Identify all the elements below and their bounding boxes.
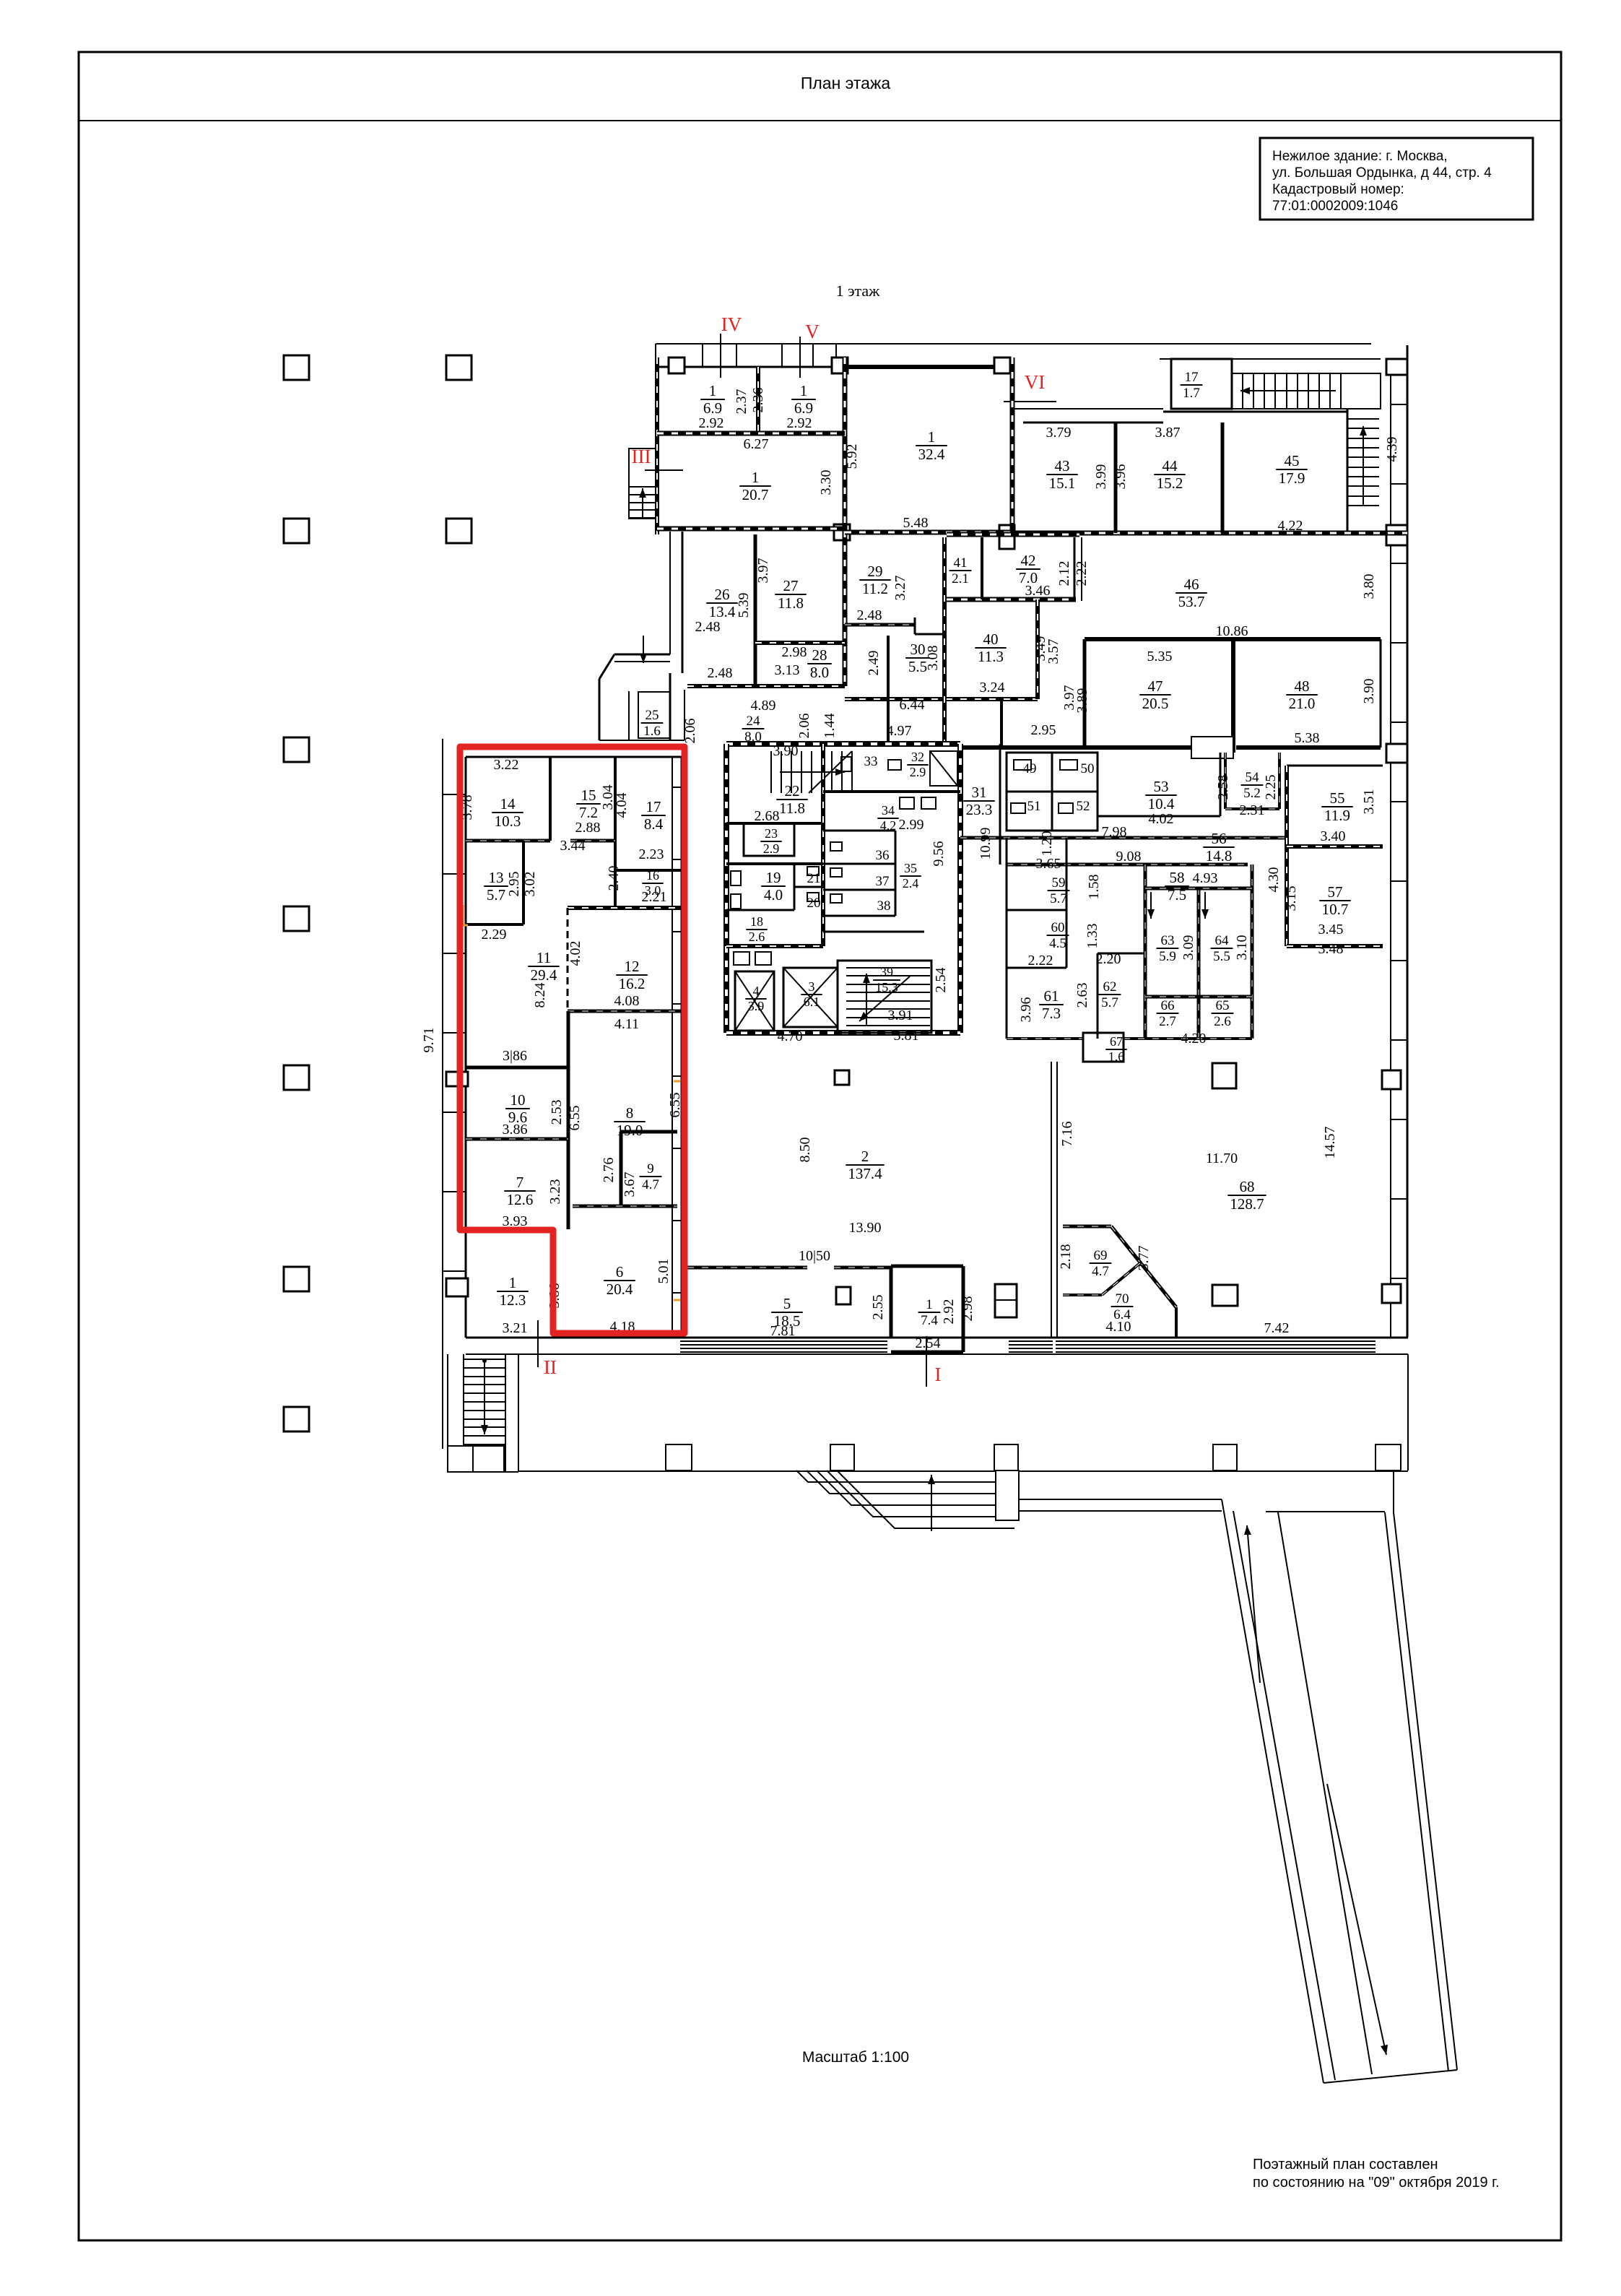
svg-text:3.30: 3.30 [818,470,834,495]
svg-text:5.7: 5.7 [487,886,505,904]
svg-text:47: 47 [1148,677,1163,695]
svg-text:4.39: 4.39 [1384,437,1400,462]
svg-text:2.29: 2.29 [482,927,507,943]
svg-text:2.9: 2.9 [763,841,780,856]
svg-text:23.3: 23.3 [966,801,993,818]
svg-text:3.99: 3.99 [1093,464,1109,490]
svg-text:38: 38 [877,898,891,914]
svg-text:3|86: 3|86 [503,1048,527,1064]
svg-text:12.6: 12.6 [507,1191,534,1208]
svg-text:2.31: 2.31 [1240,802,1265,818]
svg-text:15.1: 15.1 [1049,475,1076,492]
svg-text:2.40: 2.40 [606,866,622,891]
svg-text:137.4: 137.4 [848,1165,882,1182]
svg-text:1 этаж: 1 этаж [836,282,881,300]
svg-text:15: 15 [581,787,596,804]
svg-text:1: 1 [709,382,717,399]
svg-text:2.76: 2.76 [601,1158,617,1183]
svg-text:2.95: 2.95 [1031,722,1056,738]
svg-text:I: I [935,1364,942,1385]
svg-text:2.6: 2.6 [1214,1014,1231,1029]
svg-text:4.70: 4.70 [778,1028,803,1044]
svg-text:63: 63 [1161,933,1175,948]
svg-text:41: 41 [954,555,968,571]
svg-text:2.48: 2.48 [708,665,733,681]
svg-text:1: 1 [752,469,760,486]
svg-text:2.18: 2.18 [1058,1244,1074,1270]
svg-text:60: 60 [1051,920,1065,935]
svg-text:3.90: 3.90 [773,743,799,759]
svg-text:2.92: 2.92 [941,1299,957,1325]
svg-text:7.42: 7.42 [1264,1320,1290,1336]
svg-text:IV: IV [721,313,742,335]
svg-text:2.25: 2.25 [1263,775,1279,800]
svg-text:65: 65 [1216,998,1230,1013]
svg-text:2.21: 2.21 [642,889,667,905]
svg-text:2.49: 2.49 [866,651,882,676]
svg-text:55: 55 [1330,789,1345,807]
svg-text:52: 52 [1077,799,1090,814]
svg-text:3.65: 3.65 [1036,856,1061,872]
svg-text:4.97: 4.97 [887,723,912,739]
svg-text:3.27: 3.27 [892,576,908,601]
svg-text:7.16: 7.16 [1059,1122,1075,1147]
svg-text:17.9: 17.9 [1279,469,1305,487]
svg-text:2.23: 2.23 [639,846,664,862]
svg-text:32.4: 32.4 [918,446,945,463]
svg-text:31: 31 [972,784,987,801]
svg-text:43: 43 [1055,457,1070,475]
svg-text:5.7: 5.7 [1050,891,1067,906]
svg-text:3.15: 3.15 [1283,886,1299,911]
svg-text:4.7: 4.7 [1092,1264,1109,1279]
svg-text:1.20: 1.20 [1039,831,1055,857]
svg-text:3.23: 3.23 [547,1179,563,1205]
svg-text:5.39: 5.39 [736,593,752,618]
svg-text:1.58: 1.58 [1086,875,1102,900]
svg-text:3.24: 3.24 [980,680,1005,696]
svg-text:4.0: 4.0 [764,886,783,904]
svg-text:4.10: 4.10 [1106,1319,1131,1335]
svg-text:3.9: 3.9 [748,999,765,1013]
svg-text:58: 58 [1170,869,1185,886]
svg-text:54: 54 [1246,770,1260,785]
svg-text:1.33: 1.33 [1085,924,1100,949]
svg-text:II: II [544,1356,557,1378]
svg-text:2.54: 2.54 [933,968,949,993]
svg-text:2.53: 2.53 [549,1100,565,1125]
svg-text:2.55: 2.55 [870,1295,886,1320]
svg-text:3.81: 3.81 [894,1028,919,1044]
svg-text:3.13: 3.13 [775,662,800,678]
svg-text:51: 51 [1027,799,1041,814]
svg-text:17: 17 [1185,370,1199,385]
svg-text:III: III [632,446,651,467]
svg-text:69: 69 [1094,1248,1108,1263]
svg-text:36: 36 [876,848,890,863]
svg-text:3.48: 3.48 [1318,941,1344,957]
svg-text:3.44: 3.44 [560,838,586,854]
svg-text:49: 49 [1023,761,1037,776]
svg-text:3.46: 3.46 [1025,583,1051,599]
svg-text:9.08: 9.08 [1116,849,1142,865]
svg-text:Кадастровый номер:: Кадастровый номер: [1272,182,1404,197]
svg-text:2: 2 [861,1148,869,1165]
svg-text:46: 46 [1184,576,1199,593]
svg-text:Масштаб 1:100: Масштаб 1:100 [802,2049,909,2066]
svg-text:1: 1 [928,428,936,446]
svg-text:3.40: 3.40 [1321,828,1346,844]
svg-text:53.7: 53.7 [1178,593,1205,610]
svg-text:61: 61 [1044,987,1059,1005]
svg-text:3.22: 3.22 [494,757,519,773]
svg-text:2.92: 2.92 [699,415,724,431]
svg-text:6.9: 6.9 [703,399,722,417]
svg-text:14.8: 14.8 [1206,847,1233,865]
svg-text:3: 3 [809,979,815,994]
svg-text:11.8: 11.8 [779,800,805,817]
svg-text:62: 62 [1103,979,1117,995]
svg-text:22: 22 [785,782,800,800]
svg-text:3.77: 3.77 [1136,1246,1152,1271]
svg-text:3.09: 3.09 [1181,935,1196,961]
svg-text:4.93: 4.93 [1193,870,1218,886]
svg-text:2.54: 2.54 [916,1335,941,1351]
svg-text:1: 1 [509,1274,517,1291]
svg-text:4.20: 4.20 [1181,1031,1207,1047]
svg-text:8.24: 8.24 [532,983,548,1008]
svg-text:27: 27 [783,577,799,594]
svg-text:3.51: 3.51 [1361,789,1377,815]
svg-text:2.98: 2.98 [782,644,807,660]
svg-text:44: 44 [1162,457,1178,475]
svg-text:1: 1 [800,382,808,399]
svg-text:1: 1 [926,1297,933,1312]
svg-text:4.2: 4.2 [880,818,897,833]
svg-text:24: 24 [747,714,761,729]
svg-text:8: 8 [626,1104,634,1122]
svg-text:15.3: 15.3 [875,980,898,995]
svg-text:1.6: 1.6 [643,724,661,739]
svg-text:8.4: 8.4 [644,815,664,833]
svg-text:11.9: 11.9 [1324,807,1350,824]
svg-text:59: 59 [1052,875,1066,891]
svg-text:40: 40 [983,631,999,648]
svg-text:57: 57 [1328,883,1343,901]
svg-text:ул. Большая Ордынка, д 44, стр: ул. Большая Ордынка, д 44, стр. 4 [1272,165,1492,181]
svg-text:4: 4 [753,984,760,998]
svg-text:4.08: 4.08 [614,993,640,1009]
svg-text:70: 70 [1116,1291,1129,1307]
svg-text:по состоянию на "09" октября 2: по состоянию на "09" октября 2019 г. [1253,2175,1500,2191]
svg-text:2.99: 2.99 [899,817,924,833]
svg-text:3.67: 3.67 [622,1172,638,1197]
svg-text:2.9: 2.9 [910,765,926,779]
svg-text:9: 9 [647,1161,654,1177]
svg-text:2.88: 2.88 [575,820,601,836]
svg-text:11.3: 11.3 [978,648,1004,665]
svg-text:2.58: 2.58 [1215,775,1231,800]
svg-text:3.97: 3.97 [755,558,771,584]
svg-text:7: 7 [516,1174,524,1191]
svg-text:11.8: 11.8 [778,594,804,612]
svg-text:2.1: 2.1 [952,571,969,586]
svg-text:128.7: 128.7 [1230,1195,1264,1213]
svg-text:4.89: 4.89 [751,698,776,714]
svg-text:6: 6 [616,1263,624,1281]
svg-text:12: 12 [625,958,640,975]
svg-text:56: 56 [1212,830,1227,847]
svg-text:2.06: 2.06 [682,719,698,744]
svg-text:2.68: 2.68 [755,808,780,824]
svg-text:3.87: 3.87 [1155,425,1181,441]
svg-text:5.9: 5.9 [1159,949,1176,964]
svg-text:7.2: 7.2 [579,804,598,821]
svg-text:2.98: 2.98 [960,1296,975,1322]
svg-text:21.0: 21.0 [1289,695,1316,712]
svg-text:5.01: 5.01 [656,1259,672,1284]
svg-text:10.7: 10.7 [1322,901,1349,918]
svg-text:3.86: 3.86 [503,1122,528,1138]
svg-text:3.89: 3.89 [1074,688,1090,714]
svg-text:2.37: 2.37 [734,389,749,415]
svg-text:V: V [805,321,820,342]
svg-text:6.1: 6.1 [804,995,820,1009]
svg-text:13.90: 13.90 [849,1220,882,1236]
svg-text:12.3: 12.3 [500,1291,526,1309]
svg-text:14: 14 [500,795,516,813]
svg-text:VI: VI [1025,371,1046,393]
svg-text:5.5: 5.5 [1213,949,1230,964]
svg-text:20.5: 20.5 [1142,695,1169,712]
svg-text:7.81: 7.81 [770,1323,796,1339]
svg-text:2.48: 2.48 [695,619,721,635]
svg-text:42: 42 [1021,552,1036,569]
svg-text:3.90: 3.90 [1361,679,1377,704]
svg-text:30: 30 [911,641,926,658]
svg-text:10|50: 10|50 [799,1248,830,1264]
svg-text:6.9: 6.9 [794,399,813,417]
svg-text:10.86: 10.86 [1216,623,1248,639]
svg-text:34: 34 [882,803,895,818]
svg-text:4.02: 4.02 [1149,811,1174,827]
svg-text:2.06: 2.06 [796,714,812,739]
svg-text:3.79: 3.79 [1046,425,1072,441]
svg-text:48: 48 [1295,677,1310,695]
svg-text:17: 17 [646,798,661,815]
svg-text:20.4: 20.4 [607,1281,633,1298]
svg-text:2.12: 2.12 [1056,561,1072,586]
svg-text:8.0: 8.0 [810,664,829,681]
svg-text:5.2: 5.2 [1243,786,1261,801]
svg-text:5.92: 5.92 [844,444,860,469]
svg-text:10.3: 10.3 [495,813,521,830]
svg-text:9.56: 9.56 [931,841,947,867]
svg-text:67: 67 [1110,1034,1123,1049]
svg-text:6.27: 6.27 [744,436,769,452]
svg-text:2.36: 2.36 [750,388,766,413]
svg-text:14.57: 14.57 [1322,1127,1338,1159]
svg-text:6.55: 6.55 [667,1093,683,1118]
svg-text:2.4: 2.4 [903,876,919,891]
svg-text:1.7: 1.7 [1183,386,1200,401]
svg-text:Поэтажный план составлен: Поэтажный план составлен [1253,2157,1438,2172]
svg-text:7.4: 7.4 [921,1313,938,1328]
svg-text:3.21: 3.21 [503,1320,528,1336]
svg-text:19: 19 [766,869,781,886]
svg-text:39: 39 [880,965,893,979]
svg-text:3.08: 3.08 [925,646,941,671]
svg-text:3.45: 3.45 [1318,922,1344,937]
svg-text:10.99: 10.99 [978,828,994,860]
svg-text:15.2: 15.2 [1157,475,1183,492]
svg-text:11: 11 [536,949,551,966]
svg-text:5.7: 5.7 [1101,995,1118,1010]
svg-text:6.55: 6.55 [567,1106,583,1131]
svg-text:4.22: 4.22 [1278,518,1303,534]
svg-text:11.2: 11.2 [862,580,888,597]
svg-text:3.96: 3.96 [1113,464,1129,490]
svg-text:5.35: 5.35 [1147,649,1173,664]
svg-text:3.91: 3.91 [888,1008,913,1023]
svg-text:35: 35 [904,861,917,875]
svg-text:3.10: 3.10 [1234,935,1250,961]
svg-text:4.7: 4.7 [642,1177,659,1192]
svg-text:68: 68 [1240,1178,1255,1195]
svg-text:3.96: 3.96 [1018,997,1034,1023]
svg-text:4.30: 4.30 [1266,867,1282,893]
svg-text:77:01:0002009:1046: 77:01:0002009:1046 [1272,199,1398,214]
svg-text:26: 26 [715,586,730,603]
svg-text:13: 13 [489,869,504,886]
svg-text:10: 10 [510,1091,526,1109]
svg-text:64: 64 [1215,933,1230,948]
svg-text:11.70: 11.70 [1206,1151,1238,1166]
svg-text:4.11: 4.11 [614,1016,639,1032]
svg-text:50: 50 [1081,761,1095,776]
svg-text:25: 25 [646,708,659,723]
svg-text:45: 45 [1285,452,1300,469]
svg-text:1.6: 1.6 [1108,1049,1125,1064]
svg-text:2.92: 2.92 [787,415,812,431]
svg-text:6.44: 6.44 [900,697,925,713]
svg-text:7.3: 7.3 [1042,1005,1061,1022]
svg-text:18: 18 [750,914,763,929]
svg-text:9.71: 9.71 [421,1028,437,1053]
svg-text:37: 37 [876,874,890,889]
svg-text:2.48: 2.48 [857,607,882,623]
svg-text:29: 29 [868,563,883,580]
svg-text:4.5: 4.5 [1049,936,1066,951]
svg-text:8.50: 8.50 [797,1138,813,1163]
svg-text:3.57: 3.57 [1046,639,1061,664]
svg-text:4.04: 4.04 [614,793,630,818]
svg-text:4.02: 4.02 [568,941,583,966]
svg-text:2.7: 2.7 [1159,1014,1176,1029]
svg-text:33: 33 [864,754,878,769]
svg-text:2.22: 2.22 [1074,561,1090,586]
svg-text:5.38: 5.38 [1295,730,1320,746]
svg-text:5.48: 5.48 [903,515,929,531]
svg-text:2.20: 2.20 [1096,951,1121,967]
svg-text:32: 32 [911,750,924,764]
svg-text:20.7: 20.7 [742,486,769,503]
svg-text:10.4: 10.4 [1148,795,1175,813]
svg-text:16: 16 [646,868,659,883]
svg-text:5: 5 [783,1295,791,1312]
svg-text:23: 23 [765,826,778,841]
svg-text:2.22: 2.22 [1028,953,1053,969]
svg-text:1.44: 1.44 [822,714,838,739]
svg-text:2.95: 2.95 [506,872,522,897]
svg-text:План этажа: План этажа [801,74,891,92]
svg-text:2.63: 2.63 [1074,983,1090,1008]
svg-text:28: 28 [812,646,827,664]
svg-text:13.4: 13.4 [709,603,736,620]
svg-text:16.2: 16.2 [619,975,646,992]
svg-text:2.6: 2.6 [749,930,765,944]
svg-text:53: 53 [1154,778,1169,795]
svg-text:3.80: 3.80 [1361,574,1377,599]
svg-text:66: 66 [1161,998,1175,1013]
svg-text:Нежилое здание: г. Москва,: Нежилое здание: г. Москва, [1272,149,1448,164]
svg-text:29.4: 29.4 [531,966,557,984]
svg-text:3.02: 3.02 [522,872,538,897]
